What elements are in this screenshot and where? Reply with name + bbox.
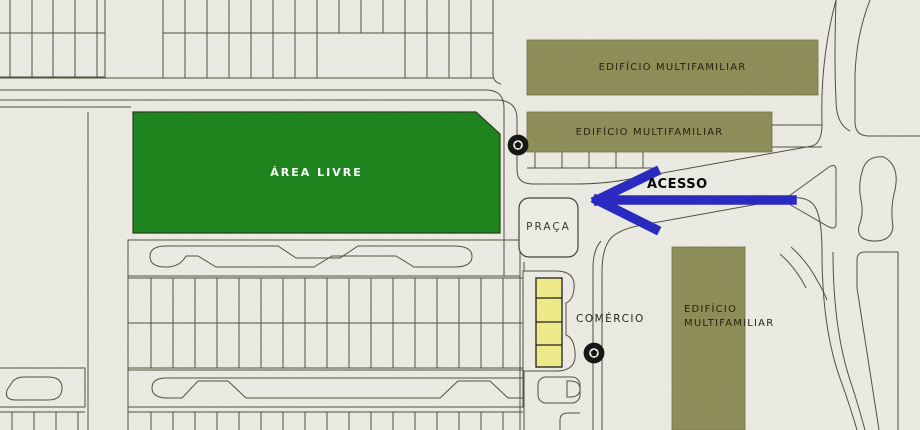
building-1-label: EDIFÍCIO MULTIFAMILIAR [527,62,818,73]
building-2-label: EDIFÍCIO MULTIFAMILIAR [527,127,772,138]
open-area-label: ÁREA LIVRE [133,166,500,179]
building-3-label: EDIFÍCIO MULTIFAMILIAR [684,303,764,331]
access-label: ACESSO [647,177,708,192]
plaza-label: PRAÇA [519,221,578,233]
site-plan-map: ÁREA LIVRE EDIFÍCIO MULTIFAMILIAR EDIFÍC… [0,0,920,430]
commerce-label: COMÉRCIO [576,313,645,325]
